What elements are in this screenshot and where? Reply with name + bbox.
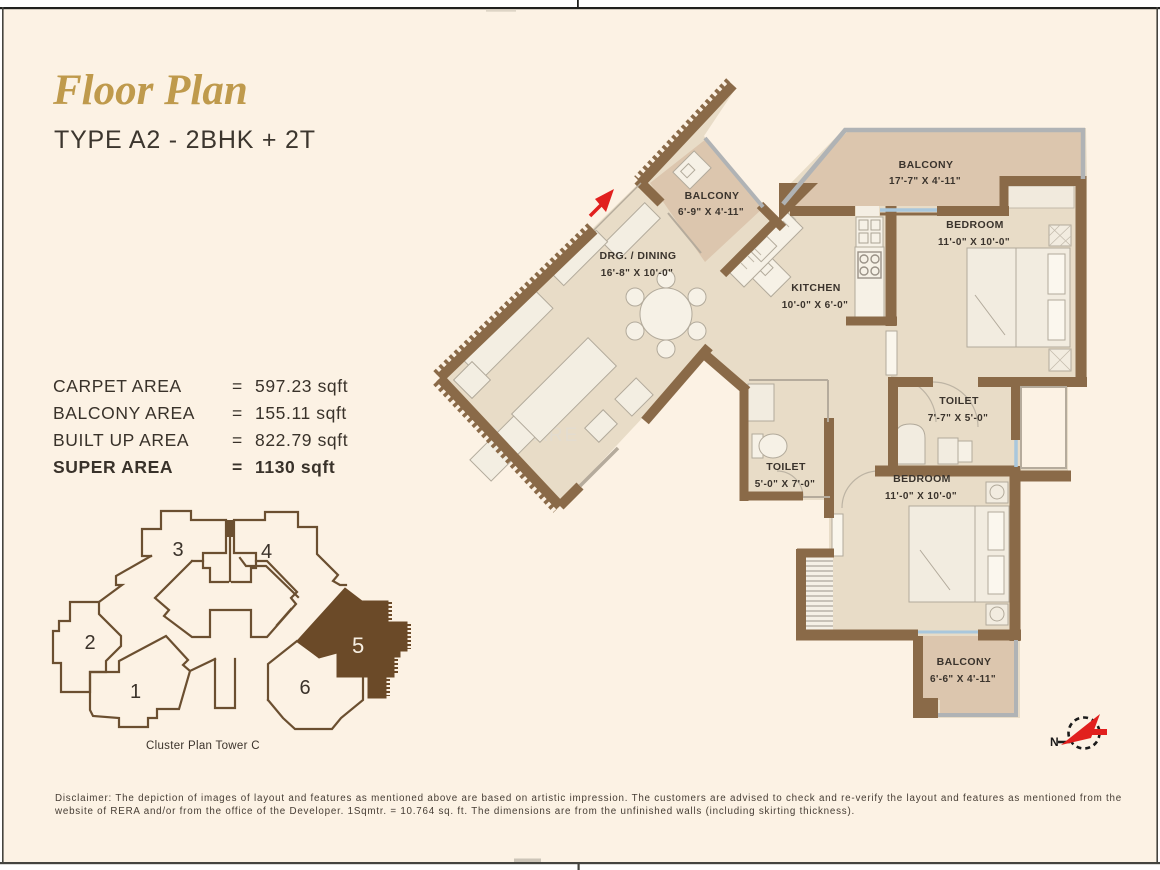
svg-text:BEDROOM: BEDROOM	[946, 219, 1004, 231]
svg-text:TYPE A2 - 2BHK + 2T: TYPE A2 - 2BHK + 2T	[54, 126, 316, 154]
svg-text:597.23 sqft: 597.23 sqft	[255, 376, 348, 396]
svg-text:17'-7" X 4'-11": 17'-7" X 4'-11"	[889, 176, 961, 187]
svg-text:4: 4	[261, 541, 272, 563]
svg-text:16'-8" X 10'-0": 16'-8" X 10'-0"	[601, 268, 674, 279]
svg-text:5'-0" X 7'-0": 5'-0" X 7'-0"	[755, 479, 816, 490]
svg-text:7'-7" X 5'-0": 7'-7" X 5'-0"	[928, 413, 989, 424]
svg-text:DRG. / DINING: DRG. / DINING	[600, 250, 677, 262]
svg-text:=: =	[232, 430, 243, 450]
svg-text:5: 5	[352, 633, 364, 658]
svg-text:KITCHEN: KITCHEN	[791, 282, 840, 294]
svg-text:TOILET: TOILET	[939, 395, 979, 407]
svg-text:=: =	[232, 376, 243, 396]
svg-text:website of RERA and/or from th: website of RERA and/or from the office o…	[54, 806, 855, 817]
svg-text:822.79 sqft: 822.79 sqft	[255, 430, 348, 450]
svg-text:1130 sqft: 1130 sqft	[255, 457, 335, 477]
svg-text:BEDROOM: BEDROOM	[893, 473, 951, 485]
svg-text:10'-0" X 6'-0": 10'-0" X 6'-0"	[782, 300, 849, 311]
svg-text:=: =	[232, 457, 243, 477]
svg-text:3: 3	[173, 539, 184, 561]
svg-text:Floor Plan: Floor Plan	[52, 67, 248, 114]
svg-text:Disclaimer: The depiction of i: Disclaimer: The depiction of images of l…	[55, 793, 1122, 804]
svg-text:BALCONY: BALCONY	[937, 656, 992, 668]
svg-text:1: 1	[130, 681, 141, 703]
svg-text:6: 6	[300, 677, 311, 699]
svg-text:BALCONY AREA: BALCONY AREA	[53, 403, 195, 423]
svg-text:11'-0" X 10'-0": 11'-0" X 10'-0"	[885, 491, 957, 502]
svg-text:6'-9" X 4'-11": 6'-9" X 4'-11"	[678, 207, 744, 218]
svg-text:11'-0" X 10'-0": 11'-0" X 10'-0"	[938, 237, 1010, 248]
svg-text:=: =	[232, 403, 243, 423]
svg-text:SUPER AREA: SUPER AREA	[53, 457, 173, 477]
svg-text:CARPET AREA: CARPET AREA	[53, 376, 182, 396]
svg-text:6'-6" X 4'-11": 6'-6" X 4'-11"	[930, 674, 996, 685]
svg-text:BUILT UP AREA: BUILT UP AREA	[53, 430, 189, 450]
svg-text:155.11 sqft: 155.11 sqft	[255, 403, 347, 423]
svg-text:N: N	[1050, 735, 1059, 749]
svg-text:2: 2	[85, 632, 96, 654]
svg-text:BALCONY: BALCONY	[899, 159, 954, 171]
svg-text:TOILET: TOILET	[766, 461, 806, 473]
svg-text:BALCONY: BALCONY	[685, 190, 740, 202]
svg-text:Cluster Plan Tower C: Cluster Plan Tower C	[146, 740, 260, 752]
